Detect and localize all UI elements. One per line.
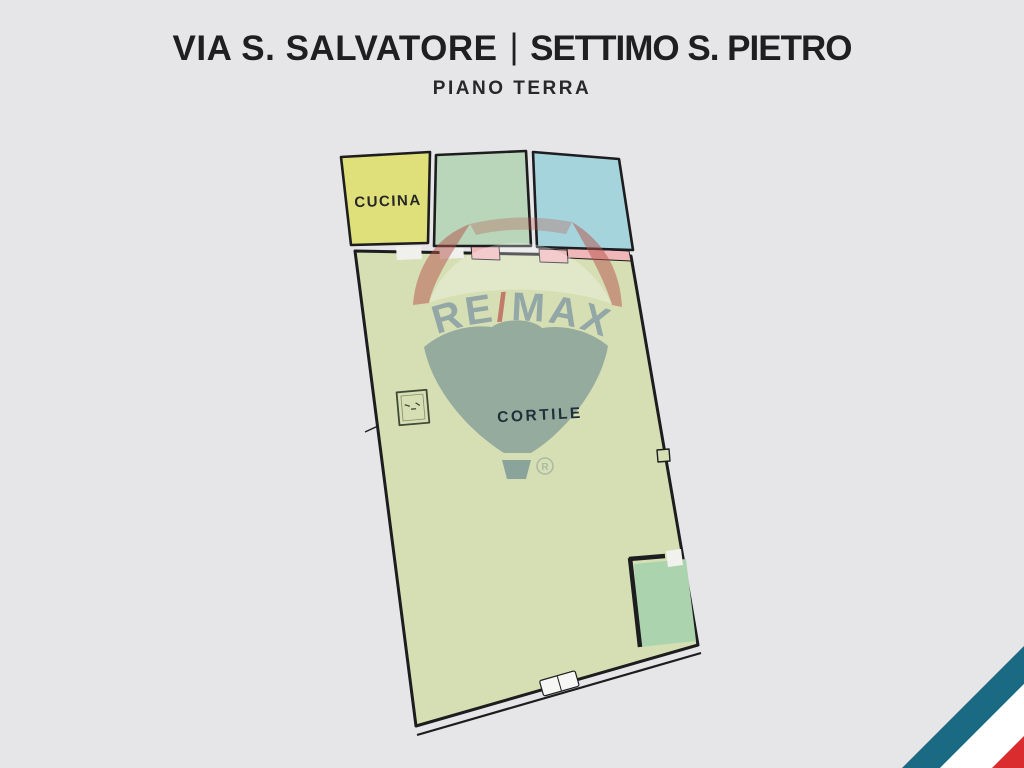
page-title: VIA S. SALVATORE|SETTIMO S. PIETRO	[0, 30, 1024, 69]
title-street: VIA S. SALVATORE	[173, 29, 498, 68]
title-separator: |	[498, 27, 531, 66]
small-room-door-opening	[666, 549, 683, 567]
balloon-basket-icon	[502, 460, 531, 479]
floorplan-page: RE/MAX R CUCINA CORTILE VIA S. SALVATORE…	[0, 0, 1024, 768]
floorplan-canvas: RE/MAX R CUCINA CORTILE	[0, 0, 1024, 768]
floor-label: PIANO TERRA	[0, 78, 1024, 100]
registered-letter: R	[541, 462, 549, 473]
room-small-green	[634, 559, 696, 647]
door-opening-cucina	[396, 246, 422, 260]
room-label-cucina: CUCINA	[354, 192, 422, 211]
boundary-marker-square	[657, 449, 670, 462]
small-room-top-wall	[629, 556, 665, 559]
title-city: SETTIMO S. PIETRO	[530, 29, 851, 68]
header: VIA S. SALVATORE|SETTIMO S. PIETRO PIANO…	[0, 30, 1024, 100]
